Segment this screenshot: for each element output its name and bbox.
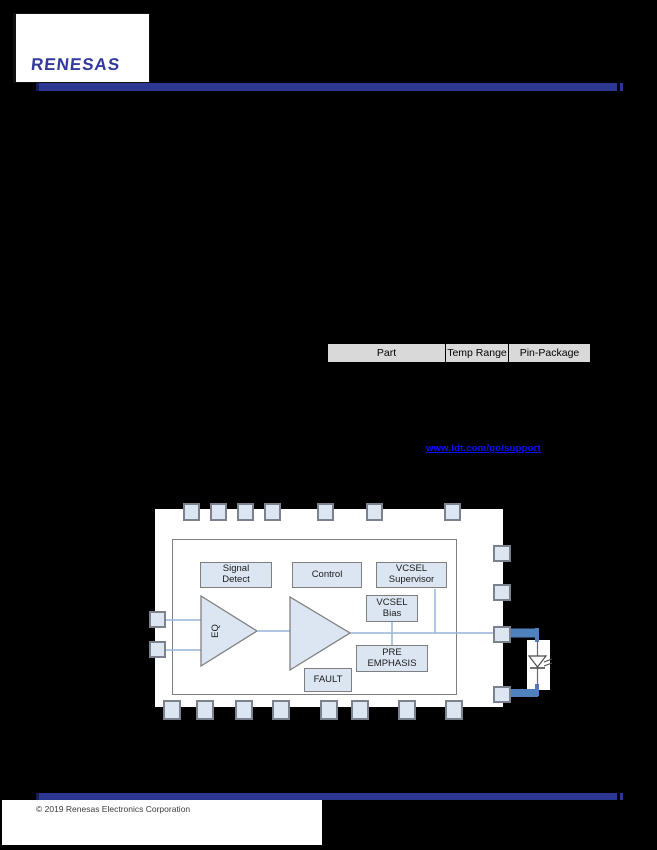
block-pre-emphasis: PRE EMPHASIS — [356, 645, 428, 672]
header-rule-right-tick — [620, 83, 623, 91]
footer-rule-left-tick — [36, 793, 39, 800]
pin-pad-right-2 — [493, 584, 511, 601]
renesas-logo-box: RENESAS — [13, 13, 150, 83]
pin-pad-right-1 — [493, 545, 511, 562]
pin-pad-top-4 — [264, 503, 281, 521]
pin-pad-left-1 — [149, 611, 166, 628]
block-control: Control — [292, 562, 362, 588]
table-header-pin-package: Pin-Package — [509, 344, 591, 364]
diagram-wires-layer — [0, 0, 657, 850]
ordering-info-link[interactable]: www.idt.com/go/support — [426, 443, 541, 454]
laser-emission-marks — [544, 659, 552, 666]
pin-pad-bottom-5 — [320, 700, 338, 720]
eq-label: EQ — [210, 613, 226, 649]
renesas-logo: RENESAS — [30, 55, 121, 75]
pin-pad-bottom-8 — [445, 700, 463, 720]
block-fault: FAULT — [304, 668, 352, 692]
pin-pad-bottom-4 — [272, 700, 290, 720]
pin-pad-top-7 — [444, 503, 461, 521]
vcsel-diode-icon — [529, 656, 546, 667]
footer-rule — [36, 793, 617, 800]
pin-pad-top-5 — [317, 503, 334, 521]
table-header-temp-range: Temp Range — [446, 344, 509, 364]
block-vcsel-bias: VCSEL Bias — [366, 595, 418, 622]
table-header-part: Part — [328, 344, 446, 364]
block-signal-detect: Signal Detect — [200, 562, 272, 588]
header-rule — [36, 83, 617, 91]
pin-pad-left-2 — [149, 641, 166, 658]
pin-pad-top-2 — [210, 503, 227, 521]
block-vcsel-supervisor: VCSEL Supervisor — [376, 562, 447, 588]
vcsel-diode-background — [527, 640, 550, 690]
pin-pad-bottom-3 — [235, 700, 253, 720]
header-rule-left-tick — [36, 83, 39, 91]
footer-box: © 2019 Renesas Electronics Corporation — [2, 800, 322, 845]
pin-pad-right-4 — [493, 686, 511, 703]
footer-rule-right-tick — [620, 793, 623, 800]
pin-pad-top-6 — [366, 503, 383, 521]
pin-pad-bottom-6 — [351, 700, 369, 720]
datasheet-page: RENESAS Part Temp Range Pin-Package www.… — [0, 0, 657, 850]
pin-pad-bottom-1 — [163, 700, 181, 720]
pin-pad-bottom-7 — [398, 700, 416, 720]
copyright-notice: © 2019 Renesas Electronics Corporation — [36, 804, 190, 814]
pin-pad-right-3 — [493, 626, 511, 643]
pin-pad-top-3 — [237, 503, 254, 521]
pin-pad-top-1 — [183, 503, 200, 521]
pin-pad-bottom-2 — [196, 700, 214, 720]
ordering-table: Part Temp Range Pin-Package — [327, 342, 591, 364]
